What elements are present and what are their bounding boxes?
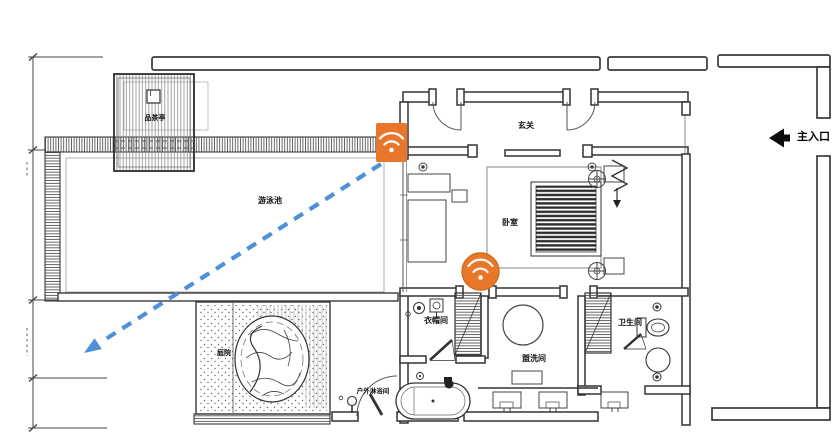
room-label-bathroom: 卫生间 bbox=[618, 319, 642, 327]
room-label-entry-hall: 玄关 bbox=[518, 122, 534, 130]
room-label-pool: 游泳池 bbox=[258, 197, 282, 205]
ceiling-fan-icon bbox=[589, 263, 606, 280]
bathroom-fixtures bbox=[624, 303, 670, 381]
dimension-lines bbox=[27, 54, 107, 432]
wifi-extender-icon[interactable] bbox=[462, 253, 499, 290]
room-label-cloakroom: 衣帽间 bbox=[424, 317, 448, 325]
room-label-pavilion: 品茶亭 bbox=[145, 115, 166, 122]
ceiling-fan-icon bbox=[589, 171, 606, 188]
rock-garden bbox=[194, 302, 330, 424]
room-label-outdoor-shower: 户外淋浴间 bbox=[357, 388, 390, 395]
floor-plan-drawing bbox=[0, 0, 837, 445]
room-label-rock-courtyard: 庭院 bbox=[217, 350, 231, 357]
room-label-washroom: 盥洗间 bbox=[522, 355, 546, 363]
pavilion-structure bbox=[114, 74, 208, 171]
main-entrance-label: 主入口 bbox=[797, 131, 830, 142]
wifi-router-icon[interactable] bbox=[376, 123, 407, 162]
main-entrance-arrow-icon bbox=[769, 129, 790, 148]
room-label-bedroom: 卧室 bbox=[502, 219, 518, 227]
floor-plan-canvas: 品茶亭 游泳池 玄关 卧室 衣帽间 盥洗间 卫生间 户外淋浴间 庭院 主入口 bbox=[0, 0, 837, 445]
walkway-bands bbox=[45, 137, 398, 301]
